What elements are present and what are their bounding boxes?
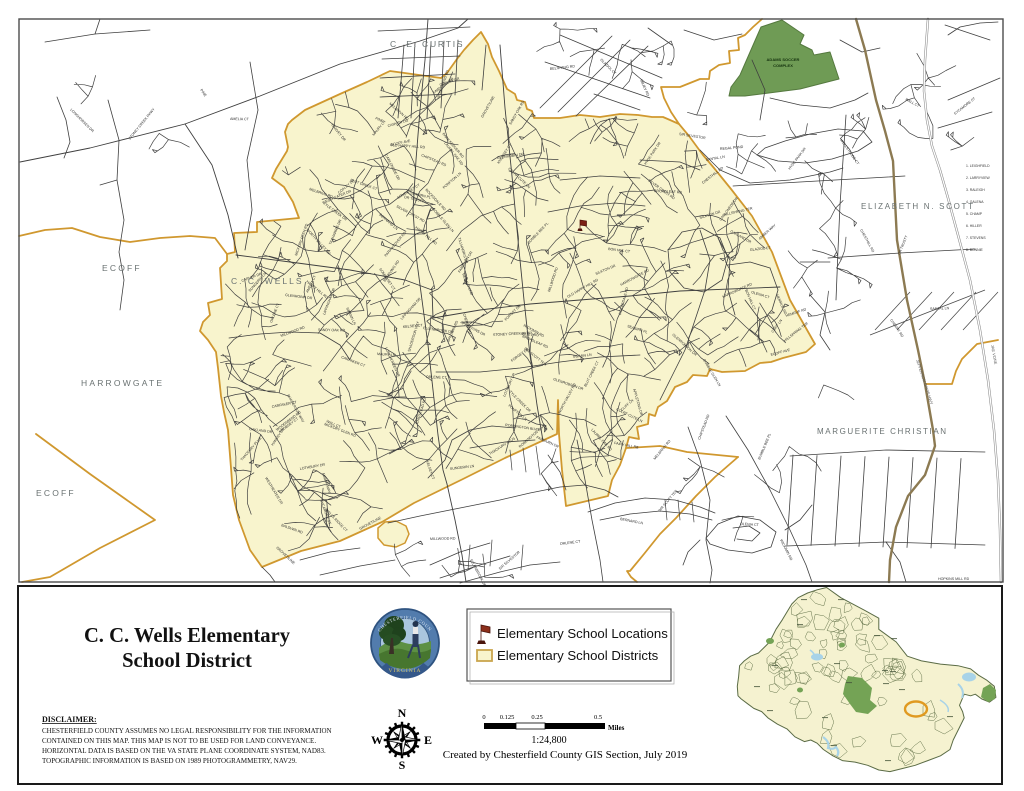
svg-text:DISCLAIMER:: DISCLAIMER:: [42, 715, 97, 724]
svg-text:0.125: 0.125: [500, 714, 515, 721]
svg-text:HORIZONTAL DATA IS BASED ON TH: HORIZONTAL DATA IS BASED ON THE VA STATE…: [42, 747, 326, 755]
svg-text:3. RALEIGH: 3. RALEIGH: [966, 188, 985, 192]
svg-text:8. BONNIE: 8. BONNIE: [966, 248, 984, 252]
svg-text:1:24,800: 1:24,800: [531, 735, 566, 746]
svg-text:ADAMS SOCCER: ADAMS SOCCER: [767, 57, 800, 62]
svg-text:Elementary School Districts: Elementary School Districts: [497, 648, 659, 663]
svg-text:MILLWOOD RD: MILLWOOD RD: [430, 537, 456, 541]
svg-text:ELIZABETH N. SCOTT: ELIZABETH N. SCOTT: [861, 202, 975, 211]
svg-text:Created by Chesterfield County: Created by Chesterfield County GIS Secti…: [443, 749, 688, 761]
svg-text:SANTAL LN: SANTAL LN: [930, 306, 950, 311]
svg-text:SANDY OAK RD: SANDY OAK RD: [318, 328, 346, 332]
svg-text:VIRGINIA: VIRGINIA: [388, 668, 421, 674]
svg-text:Elementary School Locations: Elementary School Locations: [497, 626, 668, 641]
svg-text:HOPKINS MILL RD: HOPKINS MILL RD: [938, 577, 970, 581]
svg-text:W: W: [371, 733, 383, 747]
svg-text:ECOFF: ECOFF: [36, 488, 76, 498]
svg-text:7. STEVENS: 7. STEVENS: [966, 236, 986, 240]
svg-text:6. HILLER: 6. HILLER: [966, 224, 982, 228]
svg-text:S: S: [399, 758, 406, 772]
svg-text:AMELIA CT: AMELIA CT: [230, 117, 250, 121]
svg-text:0: 0: [482, 714, 485, 721]
svg-text:Miles: Miles: [608, 724, 625, 732]
svg-text:HARROWGATE: HARROWGATE: [81, 378, 164, 388]
svg-text:TOPOGRAPHIC INFORMATION IS BAS: TOPOGRAPHIC INFORMATION IS BASED ON 1989…: [42, 757, 297, 765]
svg-text:E: E: [424, 733, 432, 747]
svg-text:School District: School District: [122, 650, 252, 672]
svg-text:1. LEIGHFIELD: 1. LEIGHFIELD: [966, 164, 990, 168]
svg-text:0.5: 0.5: [594, 714, 602, 721]
svg-text:CONTAINED ON THIS MAP. THIS MA: CONTAINED ON THIS MAP. THIS MAP IS NOT T…: [42, 737, 316, 745]
svg-text:ECOFF: ECOFF: [102, 263, 142, 273]
svg-text:5. CHAMP: 5. CHAMP: [966, 212, 983, 216]
svg-text:C. E. CURTIS: C. E. CURTIS: [390, 39, 464, 49]
svg-text:ORLENE CT: ORLENE CT: [426, 375, 447, 380]
svg-text:CHESTERFIELD COUNTY ASSUMES NO: CHESTERFIELD COUNTY ASSUMES NO LEGAL RES…: [42, 727, 332, 735]
svg-text:COMPLEX: COMPLEX: [773, 63, 793, 68]
svg-text:C. C. Wells Elementary: C. C. Wells Elementary: [84, 625, 291, 647]
svg-text:N: N: [398, 706, 407, 720]
svg-text:4. GALENA: 4. GALENA: [966, 200, 984, 204]
svg-text:MARGUERITE CHRISTIAN: MARGUERITE CHRISTIAN: [817, 427, 948, 436]
svg-text:0.25: 0.25: [531, 714, 542, 721]
svg-text:2. LARRYVIEW: 2. LARRYVIEW: [966, 176, 990, 180]
